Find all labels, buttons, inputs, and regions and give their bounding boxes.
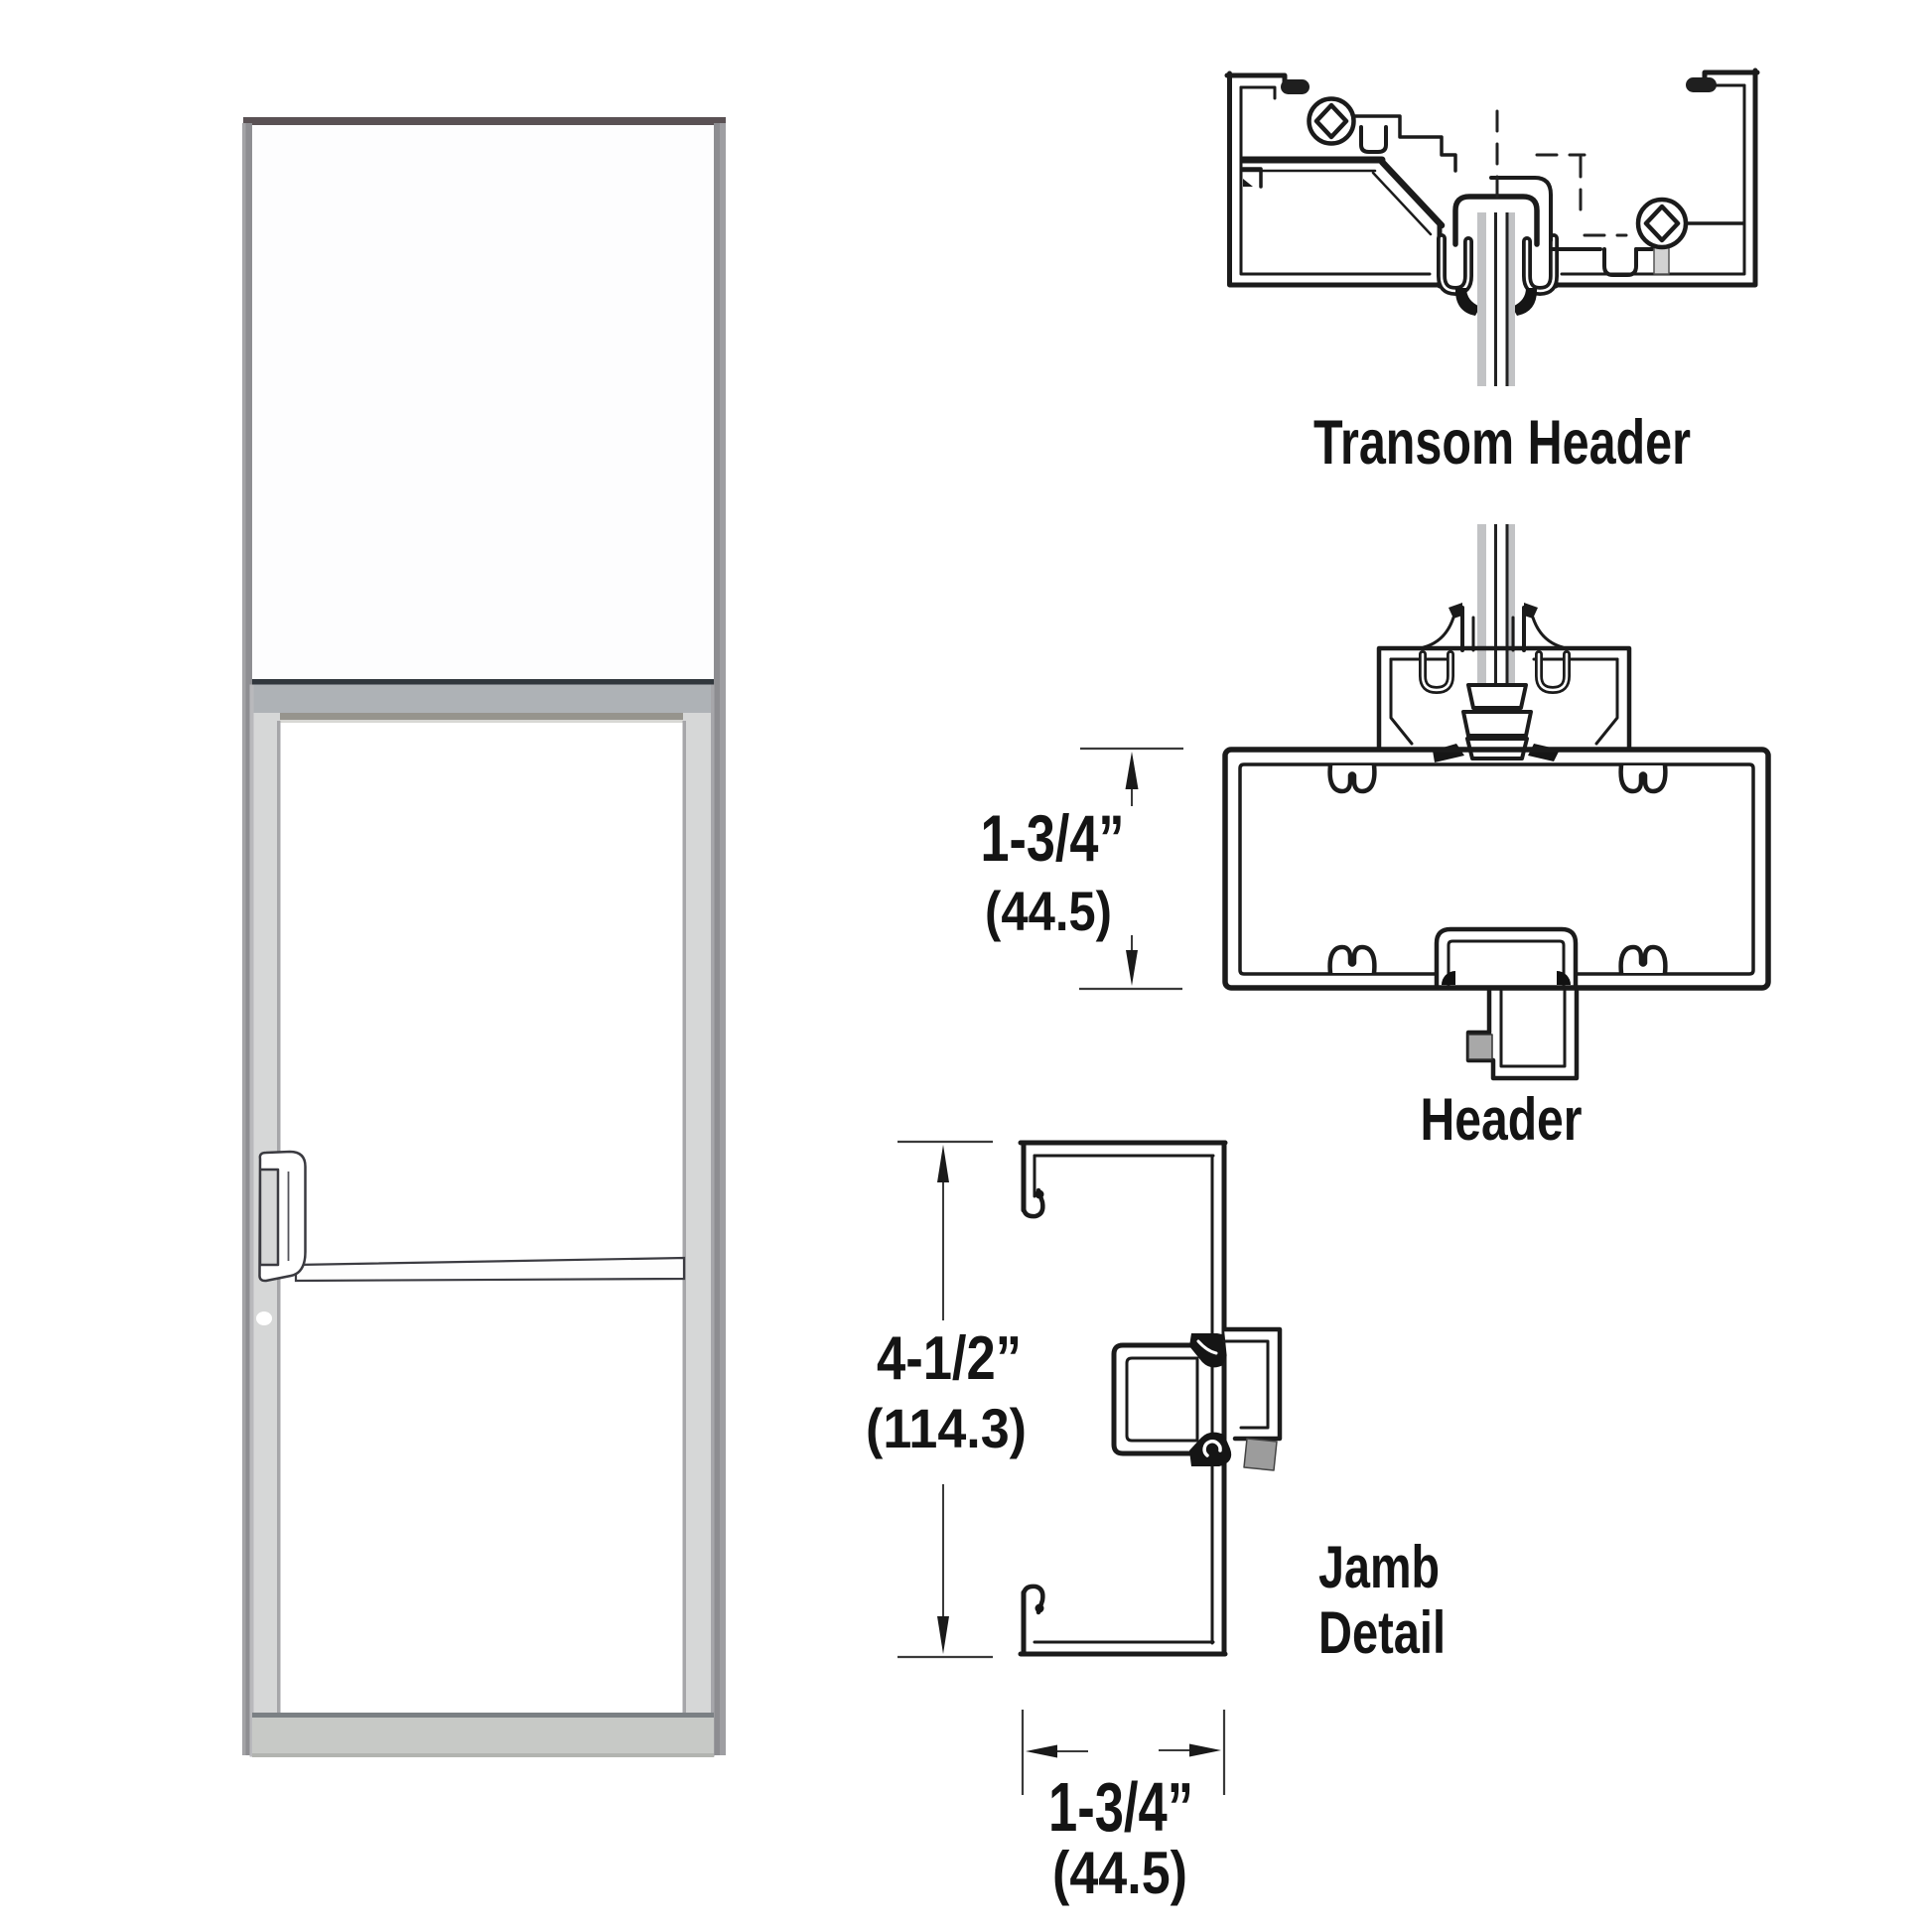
svg-text:(44.5): (44.5) [985,880,1112,942]
svg-text:1-3/4”: 1-3/4” [1048,1768,1193,1846]
svg-text:Transom Header: Transom Header [1313,408,1691,478]
svg-text:(44.5): (44.5) [1052,1840,1187,1906]
svg-text:(114.3): (114.3) [866,1397,1027,1459]
svg-text:1-3/4”: 1-3/4” [981,801,1125,875]
svg-text:Header: Header [1421,1086,1583,1153]
svg-text:Detail: Detail [1318,1599,1446,1666]
svg-text:Jamb: Jamb [1318,1534,1440,1600]
svg-text:4-1/2”: 4-1/2” [877,1324,1022,1393]
